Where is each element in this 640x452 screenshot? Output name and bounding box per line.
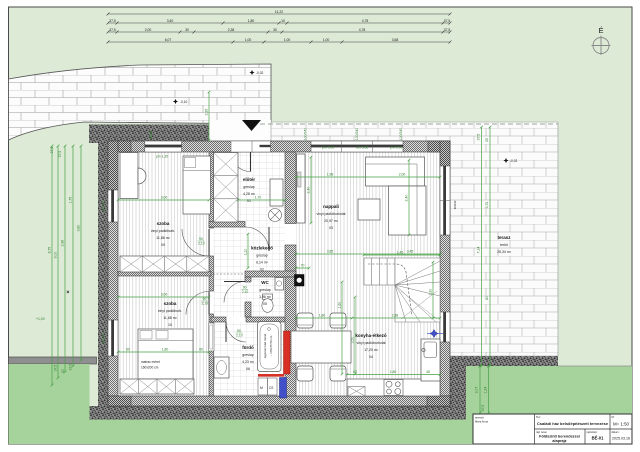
svg-text:90/240: 90/240 — [453, 200, 457, 209]
svg-text:1,98: 1,98 — [327, 173, 334, 177]
svg-text:egyenes kád méret: egyenes kád méret — [263, 334, 267, 359]
svg-text:30: 30 — [273, 28, 277, 32]
svg-text:+1,00: +1,00 — [36, 317, 45, 321]
svg-text:4,78: 4,78 — [359, 28, 366, 32]
svg-text:125/100: 125/100 — [102, 332, 106, 344]
svg-text:05: 05 — [263, 302, 267, 306]
svg-text:terkő: terkő — [500, 243, 508, 247]
svg-text:greslap: greslap — [242, 353, 254, 357]
svg-text:rajzszám:: rajzszám: — [587, 430, 598, 434]
svg-text:20,97 m²: 20,97 m² — [324, 219, 339, 223]
svg-text:3,07: 3,07 — [475, 387, 479, 394]
svg-text:dátum:: dátum: — [612, 430, 620, 434]
svg-text:80: 80 — [199, 348, 203, 352]
svg-text:2,40: 2,40 — [404, 195, 408, 202]
svg-text:szoba: szoba — [157, 221, 170, 226]
svg-text:10: 10 — [281, 19, 285, 23]
svg-text:vinyl padlóburk.: vinyl padlóburk. — [158, 309, 182, 313]
svg-text:90: 90 — [199, 237, 203, 241]
svg-text:greslap: greslap — [259, 288, 271, 292]
svg-text:szoba: szoba — [164, 301, 177, 306]
svg-text:2,96: 2,96 — [61, 240, 65, 247]
svg-text:10: 10 — [168, 323, 172, 327]
svg-text:rajz neve:: rajz neve: — [536, 430, 548, 434]
svg-text:3,00: 3,00 — [161, 293, 168, 297]
svg-text:30: 30 — [185, 28, 189, 32]
svg-text:M= 1:50: M= 1:50 — [613, 422, 630, 427]
svg-text:1,80: 1,80 — [162, 348, 169, 352]
svg-text:11,86 m²: 11,86 m² — [156, 236, 170, 240]
svg-text:1,80: 1,80 — [319, 314, 326, 318]
svg-text:17,20 m²: 17,20 m² — [364, 348, 379, 352]
svg-text:25,34 m²: 25,34 m² — [497, 250, 512, 254]
svg-text:160x200 cm: 160x200 cm — [141, 366, 159, 370]
svg-text:M:: M: — [612, 415, 615, 419]
svg-text:37,5: 37,5 — [58, 151, 62, 158]
svg-text:1,45: 1,45 — [397, 251, 404, 255]
svg-text:É: É — [598, 26, 603, 35]
svg-text:100/240: 100/240 — [399, 128, 403, 140]
svg-text:előtér: előtér — [243, 177, 256, 182]
svg-text:60: 60 — [126, 348, 130, 352]
svg-text:2,10: 2,10 — [202, 302, 209, 306]
svg-text:125/100: 125/100 — [102, 200, 106, 212]
svg-text:37,5: 37,5 — [444, 28, 451, 32]
svg-text:11,68 m²: 11,68 m² — [163, 316, 177, 320]
svg-text:tervező:: tervező: — [475, 416, 485, 420]
svg-text:06: 06 — [246, 367, 250, 371]
svg-text:4,78: 4,78 — [362, 19, 369, 23]
svg-text:01: 01 — [247, 199, 251, 203]
svg-text:vinyl padlóburkolat: vinyl padlóburkolat — [357, 341, 386, 345]
svg-text:2,00: 2,00 — [145, 28, 152, 32]
svg-text:alaprajz: alaprajz — [552, 439, 566, 443]
svg-text:37,5: 37,5 — [109, 28, 116, 32]
svg-text:nappali: nappali — [323, 204, 339, 209]
svg-text:CS: CS — [269, 386, 273, 390]
svg-text:6,14 m²: 6,14 m² — [256, 261, 269, 265]
svg-text:2025.03.16: 2025.03.16 — [612, 437, 630, 441]
svg-text:3,68: 3,68 — [392, 38, 399, 42]
svg-text:2,35: 2,35 — [204, 109, 208, 116]
svg-text:70: 70 — [301, 264, 305, 268]
svg-text:4,28 m²: 4,28 m² — [243, 192, 256, 196]
svg-text:37,5: 37,5 — [481, 405, 485, 412]
svg-text:2,38: 2,38 — [228, 28, 235, 32]
svg-text:37,5: 37,5 — [444, 19, 451, 23]
svg-text:9,00: 9,00 — [54, 252, 58, 259]
svg-text:90: 90 — [237, 329, 241, 333]
svg-text:konyha-étkező: konyha-étkező — [355, 333, 387, 338]
svg-text:1,10: 1,10 — [243, 249, 247, 256]
svg-text:2,30: 2,30 — [428, 289, 432, 296]
svg-text:2,40: 2,40 — [306, 187, 310, 194]
svg-text:20: 20 — [61, 369, 65, 373]
svg-text:üm 3,08: üm 3,08 — [356, 146, 368, 150]
svg-text:37,5: 37,5 — [50, 147, 54, 154]
svg-text:2,88: 2,88 — [392, 314, 399, 318]
svg-text:-0,02: -0,02 — [256, 71, 263, 75]
svg-text:greslap: greslap — [256, 254, 268, 258]
svg-text:3,45: 3,45 — [407, 250, 414, 254]
svg-text:vinyl padlóburk.: vinyl padlóburk. — [151, 229, 175, 233]
svg-text:3,00: 3,00 — [161, 196, 168, 200]
svg-text:Minta Anna: Minta Anna — [475, 420, 489, 424]
svg-text:37,5: 37,5 — [54, 365, 58, 372]
svg-text:37,5: 37,5 — [477, 134, 481, 141]
svg-text:1,60: 1,60 — [337, 302, 341, 309]
svg-text:7,14: 7,14 — [477, 247, 481, 254]
svg-text:37,5: 37,5 — [69, 364, 73, 371]
svg-text:greslap: greslap — [243, 185, 255, 189]
svg-text:3,40: 3,40 — [167, 19, 174, 23]
svg-text:pm 0,90: pm 0,90 — [390, 146, 402, 150]
svg-text:1,00: 1,00 — [323, 38, 330, 42]
svg-text:terasz: terasz — [497, 235, 511, 240]
svg-text:4,23 m²: 4,23 m² — [242, 360, 255, 364]
svg-text:1,96 m²: 1,96 m² — [259, 295, 272, 299]
svg-text:1,80: 1,80 — [390, 370, 397, 374]
svg-text:6,07: 6,07 — [165, 38, 172, 42]
svg-text:90: 90 — [203, 297, 207, 301]
svg-text:3,72: 3,72 — [485, 202, 489, 209]
svg-text:09: 09 — [161, 243, 165, 247]
svg-text:1,24: 1,24 — [484, 387, 488, 394]
svg-text:11,22: 11,22 — [275, 10, 283, 14]
svg-text:Földszinti berendezési: Földszinti berendezési — [539, 435, 580, 439]
svg-text:3,85: 3,85 — [327, 250, 334, 254]
svg-text:25: 25 — [485, 138, 489, 142]
svg-text:matrac méret: matrac méret — [141, 360, 160, 364]
svg-text:-0,02: -0,02 — [510, 159, 517, 163]
svg-text:Tsz:: Tsz: — [536, 415, 541, 419]
svg-text:85/85: 85/85 — [149, 131, 153, 140]
svg-text:80: 80 — [485, 296, 489, 300]
svg-text:1,00: 1,00 — [245, 38, 252, 42]
svg-text:1,00: 1,00 — [284, 38, 291, 42]
svg-text:1,70: 1,70 — [255, 196, 262, 200]
svg-text:90: 90 — [243, 286, 247, 290]
svg-text:M: M — [260, 386, 263, 390]
svg-text:3,50: 3,50 — [350, 337, 354, 344]
svg-text:BÉ-01: BÉ-01 — [592, 436, 605, 441]
svg-text:Családi ház belsőépítészeti te: Családi ház belsőépítészeti tervezése — [537, 421, 609, 426]
svg-text:100/240: 100/240 — [304, 128, 308, 140]
svg-text:-0,10: -0,10 — [180, 100, 187, 104]
svg-text:3,80: 3,80 — [77, 225, 81, 232]
svg-text:03: 03 — [329, 226, 333, 230]
svg-text:2,10: 2,10 — [198, 242, 205, 246]
svg-text:~ 170x75,50 cm: ~ 170x75,50 cm — [269, 335, 273, 356]
svg-text:fürdő: fürdő — [242, 345, 254, 350]
svg-text:100/240: 100/240 — [355, 128, 359, 140]
svg-text:45: 45 — [426, 370, 430, 374]
svg-text:1,75: 1,75 — [69, 197, 73, 204]
svg-text:8,75: 8,75 — [48, 247, 52, 254]
svg-text:37,5: 37,5 — [109, 19, 116, 23]
svg-text:vinyl padlóburkolat: vinyl padlóburkolat — [317, 212, 346, 216]
svg-text:04: 04 — [369, 355, 373, 359]
svg-text:közlekedő: közlekedő — [251, 246, 273, 251]
svg-text:2,00: 2,00 — [399, 173, 406, 177]
svg-text:1,80: 1,80 — [248, 19, 255, 23]
svg-text:2,10: 2,10 — [242, 290, 249, 294]
svg-text:pm 1,20: pm 1,20 — [156, 155, 168, 159]
svg-text:pm 0,00: pm 0,00 — [322, 146, 334, 150]
svg-text:02: 02 — [260, 268, 264, 272]
svg-text:2,10: 2,10 — [236, 334, 243, 338]
svg-text:WC: WC — [261, 280, 269, 285]
